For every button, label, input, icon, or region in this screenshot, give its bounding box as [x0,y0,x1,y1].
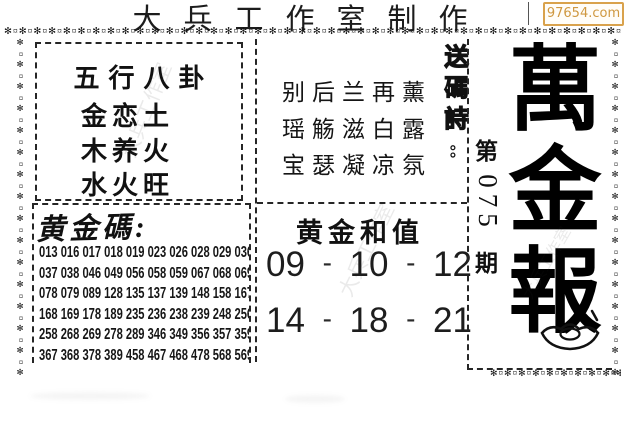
poem-line: 宝瑟凝凉氛 [282,146,432,180]
print-smudge [30,392,150,400]
poem-line: 别后兰再薰 [282,73,432,107]
horizontal-divider [257,202,467,204]
number-row: 258 268 269 278 289 346 349 356 357 359 [39,325,189,346]
masthead-char: 萬 [501,41,609,142]
header-divider [528,2,529,25]
golden-codes-box: 黄金碼: 013 016 017 018 019 023 026 028 029… [32,203,251,363]
lottery-tip-sheet: 大兵工作室制作 97654.com ✻¤✻¤✻¤✻¤✻¤✻¤✻¤✻¤✻¤✻¤✻¤… [0,0,625,431]
sum-separator: - [406,303,415,339]
five-elements-line: 木养火 [81,131,174,168]
golden-sum-row: 09 - 10 - 12 [266,245,472,285]
masthead-box: 第 075 期 萬 金 報 [467,39,612,370]
five-elements-line: 水火旺 [81,165,174,202]
sum-value: 10 [350,245,389,285]
vertical-divider [255,39,257,362]
issue-number-value: 075 [472,174,503,233]
site-badge[interactable]: 97654.com [543,2,624,26]
sum-separator: - [406,247,415,283]
number-row: 367 368 378 389 458 467 468 478 568 569 [39,346,189,364]
masthead-char: 金 [501,142,609,243]
poem-line: 瑶觞滋白露 [282,110,432,144]
five-elements-heading: 五行八卦 [37,58,241,95]
number-row: 168 169 178 189 235 236 238 239 248 256 [39,305,189,326]
number-row: 037 038 046 049 056 058 059 067 068 069 [39,264,189,285]
top-star-border: ✻¤✻¤✻¤✻¤✻¤✻¤✻¤✻¤✻¤✻¤✻¤✻¤✻¤✻¤✻¤✻¤✻¤✻¤✻¤✻¤… [4,26,621,39]
five-elements-line: 金恋土 [81,96,174,133]
golden-sum-row: 14 - 18 - 21 [266,301,472,341]
print-smudge [285,395,345,403]
sum-separator: - [323,303,332,339]
sum-value: 18 [350,301,389,341]
golden-codes-heading: 黄金碼: [35,204,149,249]
left-star-border: ✻¤✻¤✻¤✻¤✻¤✻¤✻¤✻¤✻¤✻¤✻¤✻¤✻¤✻¤✻¤✻¤✻¤✻¤✻¤✻¤ [15,38,27,376]
sum-value: 09 [266,245,305,285]
golden-codes-grid: 013 016 017 018 019 023 026 028 029 036 … [39,243,247,363]
number-row: 078 079 089 128 135 137 139 148 158 167 [39,284,189,305]
sum-separator: - [323,247,332,283]
issue-prefix: 第 [475,132,498,166]
gold-ingot-icon [539,307,601,358]
sum-value: 14 [266,301,305,341]
number-row: 013 016 017 018 019 023 026 028 029 036 [39,243,189,264]
five-elements-box: 五行八卦 金恋土 木养火 水火旺 [35,42,243,201]
issue-suffix: 期 [475,244,498,278]
masthead-title: 萬 金 報 [501,41,609,344]
